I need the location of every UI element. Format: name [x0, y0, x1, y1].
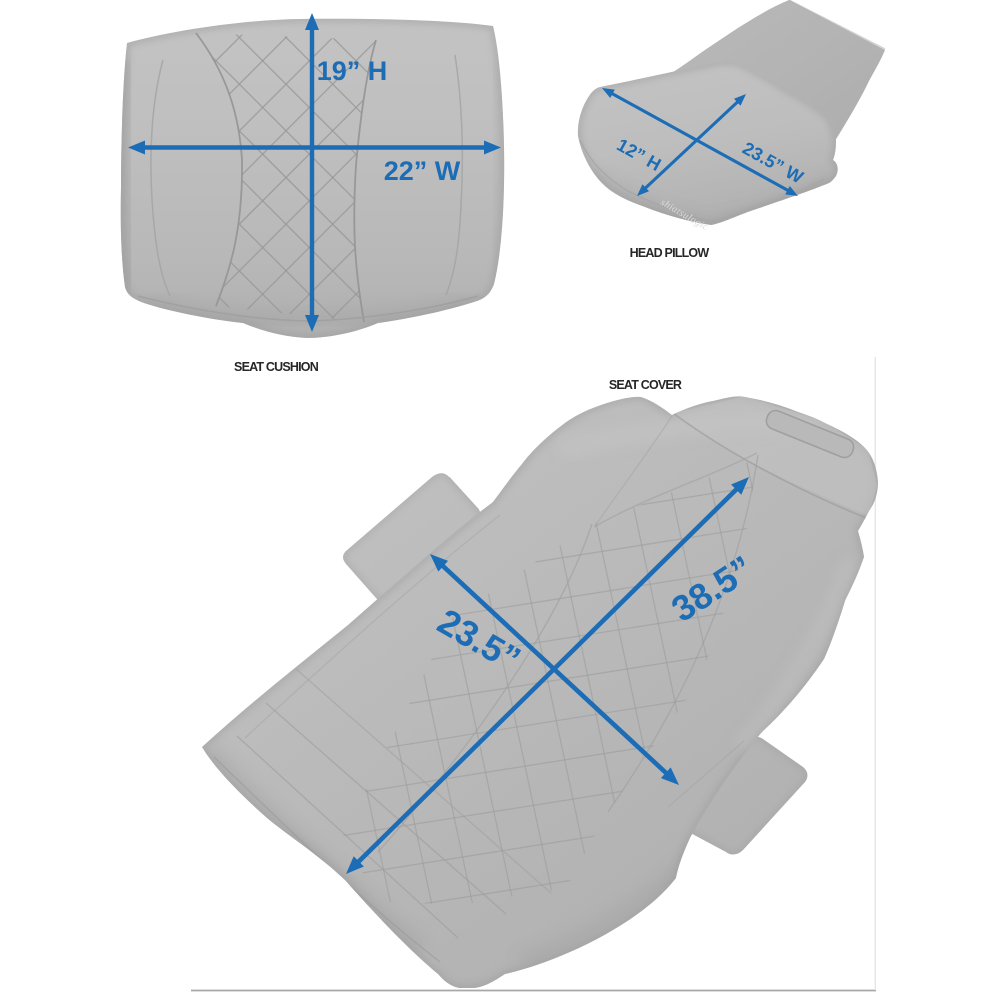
svg-text:SEAT CUSHION: SEAT CUSHION	[234, 360, 319, 374]
svg-text:SEAT COVER: SEAT COVER	[609, 378, 682, 392]
svg-text:22” W: 22” W	[384, 156, 461, 186]
svg-text:HEAD PILLOW: HEAD PILLOW	[630, 246, 710, 260]
svg-text:19” H: 19” H	[317, 56, 388, 86]
